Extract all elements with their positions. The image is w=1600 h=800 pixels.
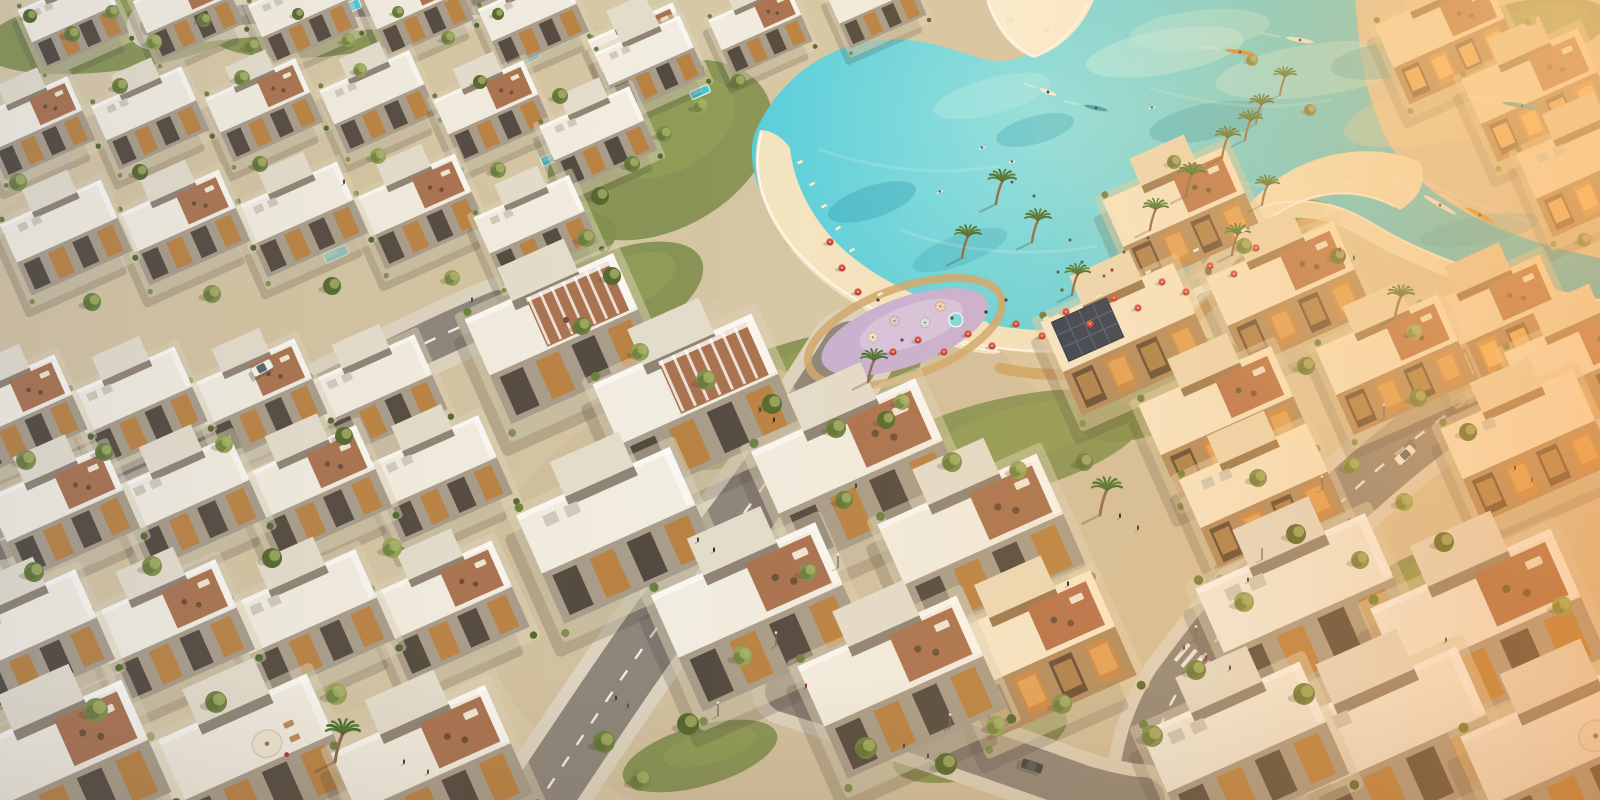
villa-community-scene xyxy=(0,0,1600,800)
bottom-vignette xyxy=(0,0,1600,800)
sunset-glow-layer xyxy=(0,0,1600,800)
aerial-render-image: Aerial render of a waterfront villa comm… xyxy=(0,0,1600,800)
